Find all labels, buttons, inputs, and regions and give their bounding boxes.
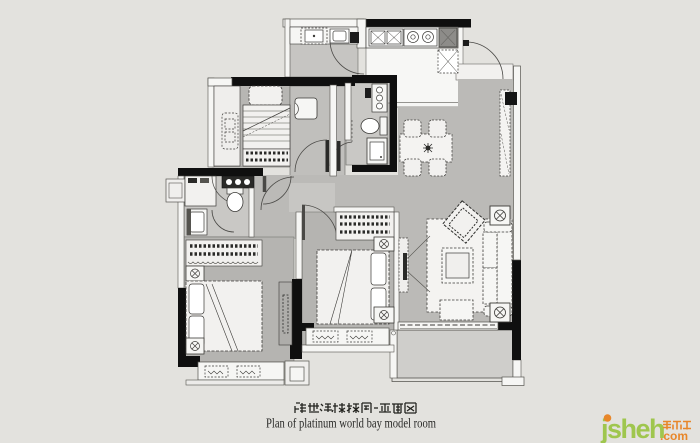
svg-text:Plan of platinum world bay mod: Plan of platinum world bay model room bbox=[266, 416, 436, 431]
svg-text:.com: .com bbox=[660, 429, 688, 443]
